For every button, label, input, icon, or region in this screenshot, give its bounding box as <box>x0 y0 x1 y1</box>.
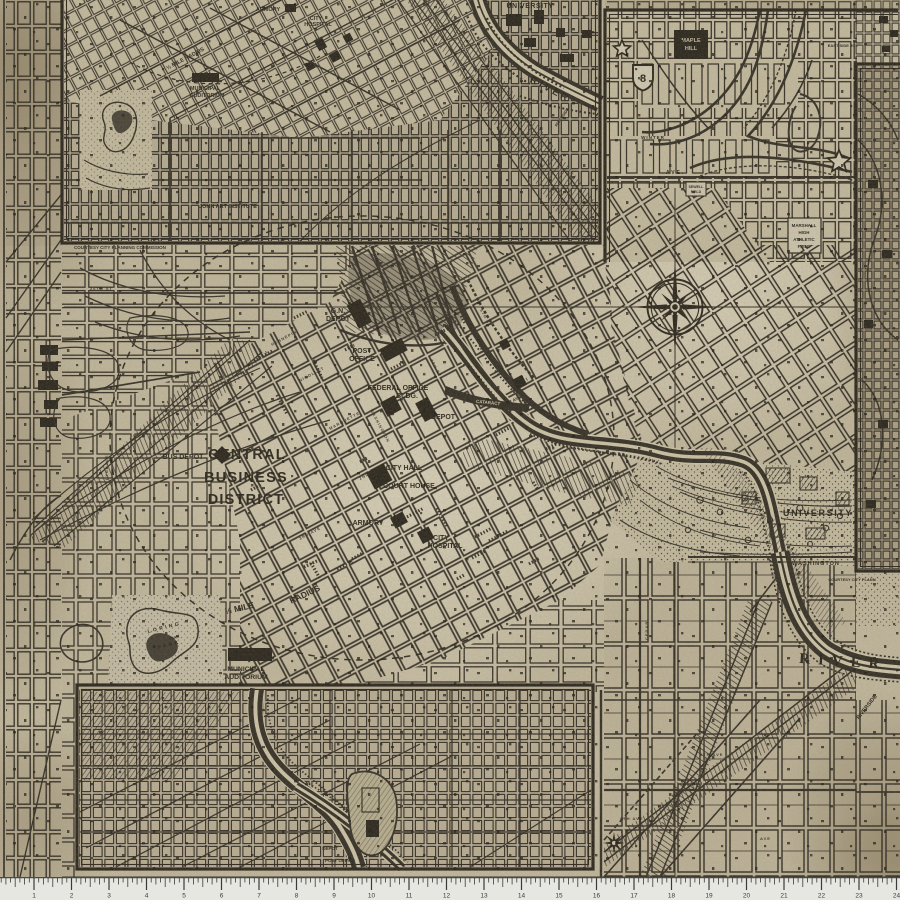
svg-text:11: 11 <box>406 893 413 900</box>
svg-text:19: 19 <box>705 893 713 900</box>
svg-text:6: 6 <box>220 893 224 900</box>
svg-text:7: 7 <box>257 893 261 900</box>
svg-text:23: 23 <box>855 893 863 900</box>
svg-text:10: 10 <box>368 893 376 900</box>
svg-text:20: 20 <box>743 893 751 900</box>
svg-text:16: 16 <box>593 893 601 900</box>
svg-text:15: 15 <box>555 893 563 900</box>
svg-text:21: 21 <box>780 893 788 900</box>
svg-text:3: 3 <box>107 893 111 900</box>
svg-text:4: 4 <box>145 893 149 900</box>
svg-text:1: 1 <box>32 893 36 900</box>
svg-text:18: 18 <box>668 893 676 900</box>
svg-text:12: 12 <box>443 893 451 900</box>
svg-text:13: 13 <box>480 893 488 900</box>
svg-text:2: 2 <box>70 893 74 900</box>
svg-text:9: 9 <box>332 893 336 900</box>
svg-text:22: 22 <box>818 893 826 900</box>
svg-text:17: 17 <box>630 893 638 900</box>
svg-text:5: 5 <box>182 893 186 900</box>
svg-text:24: 24 <box>893 893 900 900</box>
svg-text:14: 14 <box>518 893 526 900</box>
svg-text:8: 8 <box>295 893 299 900</box>
